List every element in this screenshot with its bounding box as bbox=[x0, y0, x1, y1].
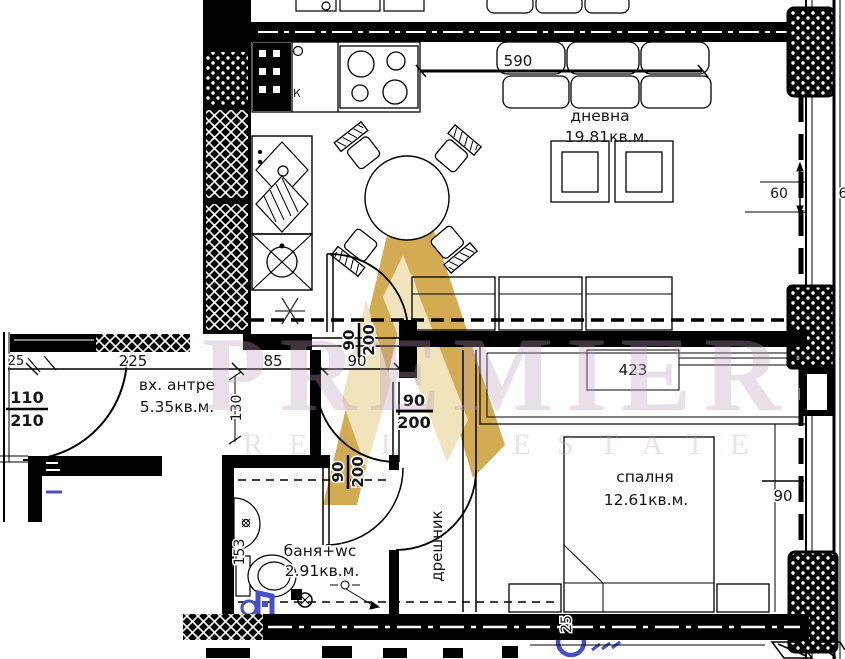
kitchen-door-size: 90 200 bbox=[340, 323, 378, 357]
door-height: 200 bbox=[397, 413, 430, 432]
corridor-door-size: 90 200 bbox=[396, 391, 433, 432]
floor-plan-image: К bbox=[0, 0, 845, 659]
corridor-door bbox=[316, 382, 399, 462]
bed bbox=[564, 437, 714, 612]
bedroom-label: спалня bbox=[616, 468, 674, 486]
dim-25: 25 bbox=[8, 354, 25, 369]
entry-hall-area: 5.35кв.м. bbox=[140, 398, 215, 416]
dim-590: 590 bbox=[504, 52, 533, 70]
dim-130: 130 bbox=[229, 395, 245, 422]
door-height: 200 bbox=[349, 456, 367, 487]
dim-85: 85 bbox=[263, 352, 282, 370]
door-width: 90 bbox=[340, 330, 358, 351]
dining-table bbox=[365, 156, 449, 240]
ceiling-lamp-symbol bbox=[330, 581, 379, 609]
entry-door-size: 110 210 bbox=[6, 388, 48, 430]
kitchen-sink bbox=[252, 136, 312, 234]
bathroom-door-size: 90 200 bbox=[329, 455, 367, 489]
entry-door-height: 210 bbox=[10, 411, 43, 430]
kitchen-stove bbox=[252, 234, 312, 290]
dim-60: 60 bbox=[770, 186, 788, 202]
living-sideboard bbox=[412, 277, 672, 330]
door-width: 90 bbox=[329, 462, 347, 483]
bathroom-area: 2.91кв.м. bbox=[285, 562, 360, 580]
dim-225: 225 bbox=[119, 352, 148, 370]
dim-90-right: 90 bbox=[773, 487, 792, 505]
door-width: 90 bbox=[403, 391, 425, 410]
closet-label: дрешник bbox=[428, 510, 446, 581]
entry-hall-label: вх. антре bbox=[139, 376, 215, 394]
dim-60-cut: 6 bbox=[839, 186, 845, 202]
door-height: 200 bbox=[360, 324, 378, 355]
bathroom-label: баня+wc bbox=[284, 542, 357, 560]
dim-25-bottom: 25 bbox=[559, 615, 575, 633]
living-room-label: дневна bbox=[570, 107, 629, 125]
kitchen-socket-label: К bbox=[293, 87, 301, 100]
dim-423: 423 bbox=[619, 361, 648, 379]
dim-153: 153 bbox=[232, 539, 248, 566]
bedroom-area: 12.61кв.м. bbox=[604, 491, 688, 509]
living-room-area: 19.81кв.м. bbox=[565, 128, 649, 146]
refrigerator bbox=[253, 43, 291, 111]
cooktop bbox=[294, 46, 419, 108]
entry-door-width: 110 bbox=[10, 388, 43, 407]
cutoff-furniture-top-strip bbox=[296, 0, 629, 13]
living-armchair-tables bbox=[551, 141, 673, 202]
floor-drain bbox=[291, 589, 312, 607]
